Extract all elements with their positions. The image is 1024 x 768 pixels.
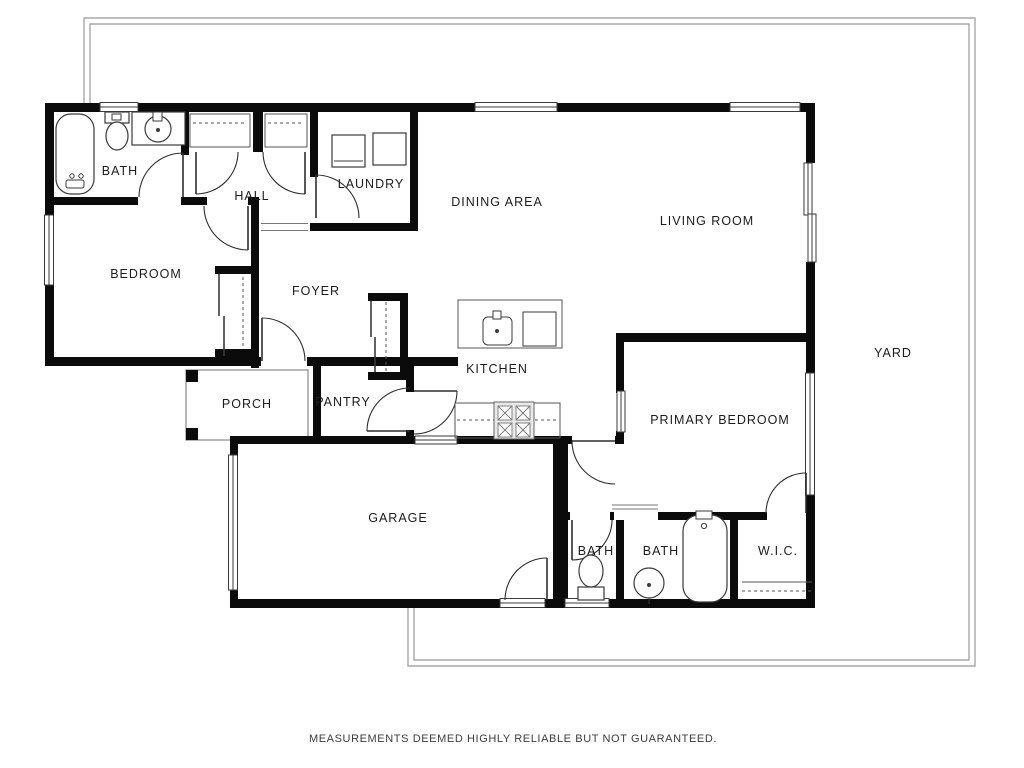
room-label-bedroom: BEDROOM [110,267,182,281]
threshold [415,436,457,444]
bathtub [683,511,727,602]
door-pantry [367,388,410,431]
door-suite-hall [572,441,615,484]
room-label-pantry: PANTRY [315,395,371,409]
pocket-door [617,391,625,432]
porch-post [186,370,198,382]
room-label-bath-2: BATH [578,544,614,558]
pedestal-sink [634,568,664,604]
hall-closet [190,114,307,147]
room-label-porch: PORCH [222,397,272,411]
washer [332,135,365,167]
sliding-door [804,163,812,215]
door-garage-rear [505,558,547,600]
window [806,373,815,495]
toilet [105,112,129,150]
room-label-bath: BATH [102,164,138,178]
room-label-kitchen: KITCHEN [466,362,528,376]
bedroom-closet [219,274,243,356]
room-label-garage: GARAGE [368,511,428,525]
window [45,215,54,285]
porch-post [186,428,198,440]
door-bedroom [204,206,248,250]
floor-plan-page: BATH HALL LAUNDRY DINING AREA LIVING ROO… [0,0,1024,768]
threshold [500,599,545,608]
window [100,103,138,112]
room-label-foyer: FOYER [292,284,340,298]
window [475,103,557,112]
room-label-laundry: LAUNDRY [338,177,405,191]
room-label-wic: W.I.C. [758,544,798,558]
toilet [578,555,604,600]
room-label-dining-area: DINING AREA [451,195,543,209]
dryer [373,133,406,165]
sink-vanity [132,112,185,145]
disclaimer-text: MEASUREMENTS DEEMED HIGHLY RELIABLE BUT … [309,733,717,745]
door-front-entry [262,318,305,361]
door-garage-entry [414,391,457,434]
floor-plan-drawing [0,0,1024,768]
room-label-primary-bedroom: PRIMARY BEDROOM [650,413,790,427]
door-hall-closet-2 [263,152,305,194]
window [730,103,800,112]
garage-door [229,455,238,590]
room-label-living-room: LIVING ROOM [660,214,754,228]
wic-shelf [742,582,812,591]
door-wic [766,473,806,513]
door-hall-closet-1 [196,152,238,194]
door-bath [139,153,183,197]
room-label-yard: YARD [874,346,912,360]
kitchen-island [458,300,562,348]
stove [494,402,534,439]
sliding-door [808,214,816,262]
room-label-hall: HALL [234,189,269,203]
bathtub [56,114,94,194]
room-label-bath-3: BATH [643,544,679,558]
